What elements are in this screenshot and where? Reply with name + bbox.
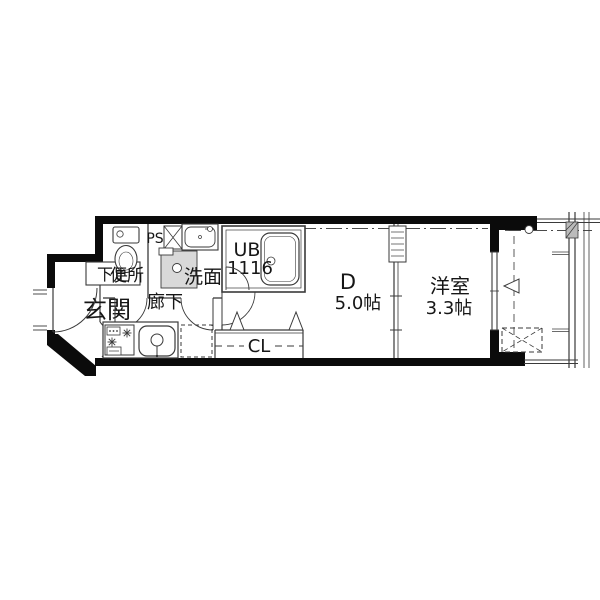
kitchen bbox=[103, 322, 212, 358]
closet-label: CL bbox=[248, 336, 271, 357]
dining-room: D 5.0帖 bbox=[335, 270, 382, 314]
entry-door-jambs bbox=[33, 290, 47, 330]
wall-annex-top bbox=[47, 254, 103, 262]
dining-label: D bbox=[340, 270, 356, 294]
balcony-direction-mark bbox=[504, 279, 519, 293]
dining-size: 5.0帖 bbox=[335, 293, 382, 314]
railing-hatch-box bbox=[566, 222, 578, 238]
hallway-label: 廊下 bbox=[147, 292, 183, 313]
closet-door-mark-right bbox=[289, 312, 303, 330]
wall-window-top bbox=[490, 230, 499, 252]
entrance-label: 玄関 bbox=[83, 296, 131, 324]
wall-top bbox=[95, 216, 490, 224]
burner-1 bbox=[123, 329, 132, 338]
floorplan-canvas: 下足 玄関 便所 PS bbox=[0, 0, 600, 600]
unit-bath: UB 1116 bbox=[222, 226, 305, 292]
western-room-size: 3.3帖 bbox=[426, 298, 473, 319]
pipe-space-label: PS bbox=[146, 231, 163, 247]
western-room: 洋室 3.3帖 bbox=[426, 274, 473, 319]
stove-icon bbox=[105, 325, 134, 355]
washroom-label: 洗面 bbox=[184, 266, 222, 288]
floorplan-page: 下足 玄関 便所 PS bbox=[0, 0, 600, 600]
balcony-window bbox=[490, 252, 499, 330]
toilet-label: 便所 bbox=[110, 266, 144, 286]
kitchen-sink-icon bbox=[139, 326, 175, 357]
wall-bottom bbox=[95, 358, 490, 366]
boundary-mark-circle bbox=[525, 226, 533, 234]
wall-annex-diagonal bbox=[47, 334, 96, 376]
sliding-partition bbox=[389, 224, 406, 358]
pipe-space: PS bbox=[146, 226, 182, 249]
washbasin-icon bbox=[182, 224, 218, 250]
western-room-label: 洋室 bbox=[430, 274, 470, 298]
wall-annex-left-upper bbox=[47, 254, 55, 288]
drain-circle bbox=[173, 264, 182, 273]
closet: CL bbox=[215, 312, 303, 358]
railing-ticks bbox=[552, 252, 569, 332]
closet-door-mark-left bbox=[230, 312, 244, 330]
wall-bottom-right-chunk bbox=[490, 352, 525, 366]
balcony bbox=[502, 212, 600, 368]
burner-2 bbox=[108, 338, 117, 347]
balcony-railing bbox=[524, 212, 600, 368]
balcony-washer-space bbox=[502, 328, 542, 352]
